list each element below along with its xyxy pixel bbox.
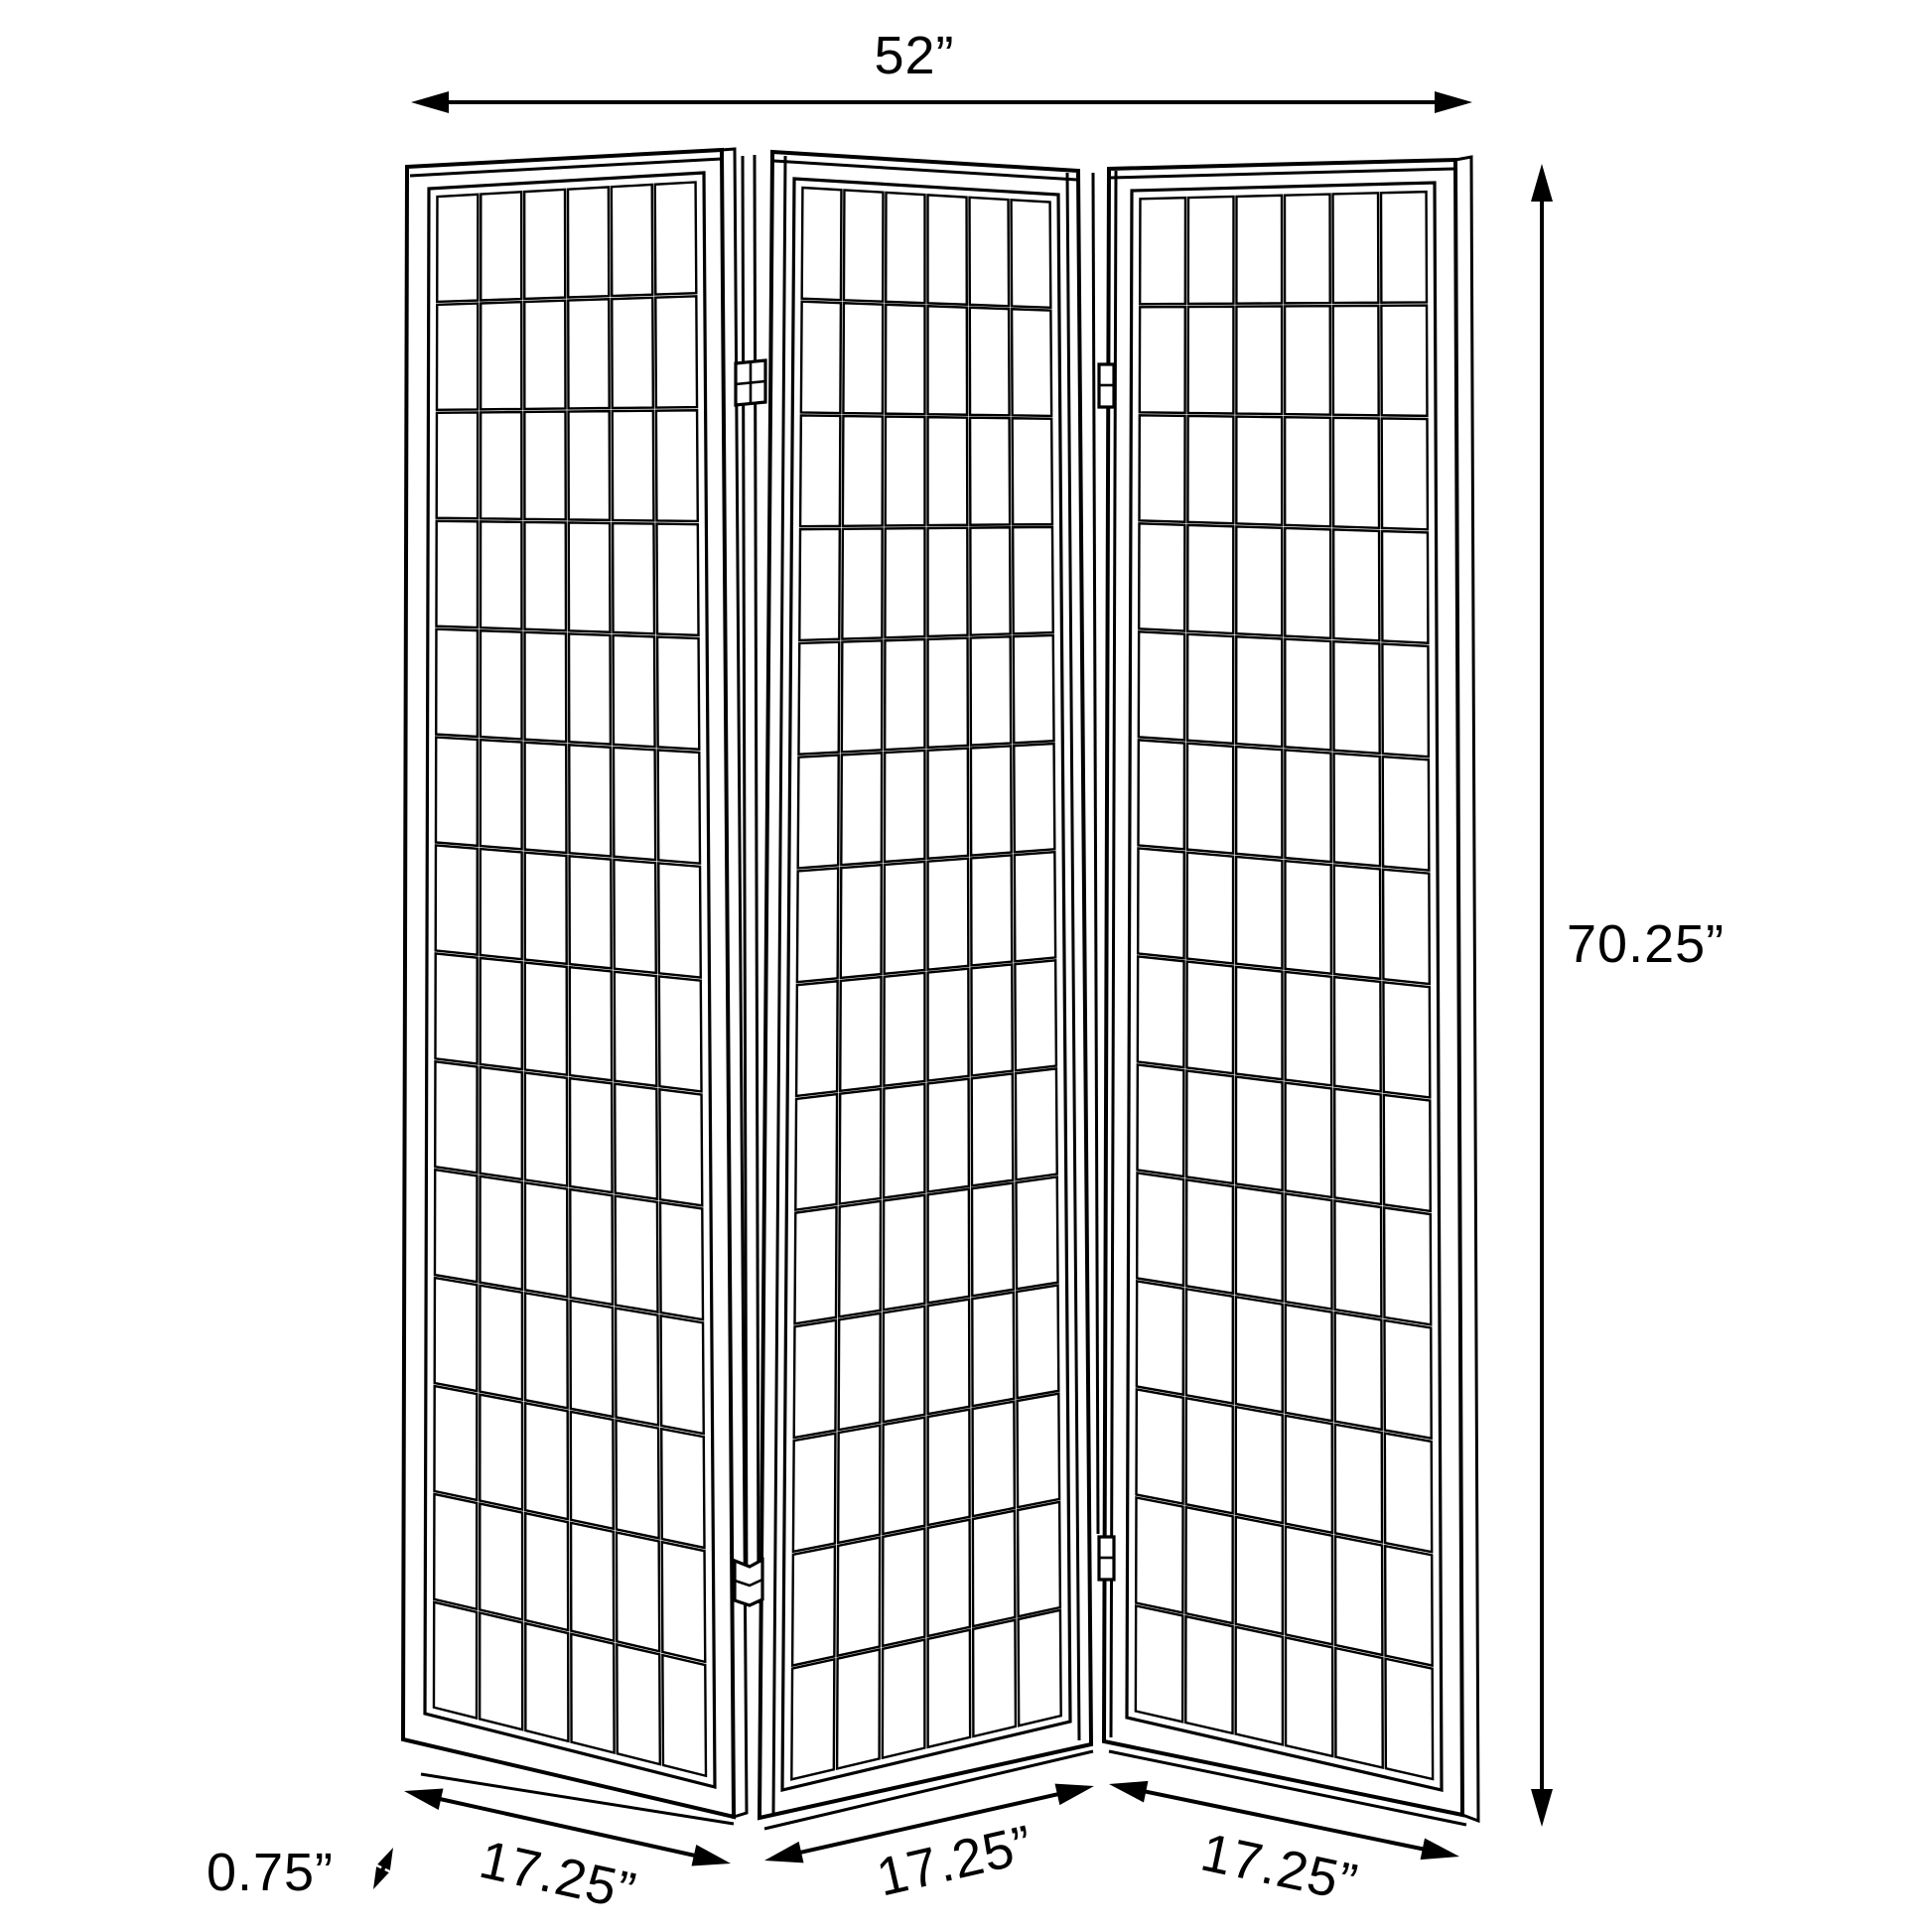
lattice-cell xyxy=(1285,417,1330,526)
lattice-cell xyxy=(1286,1527,1332,1645)
lattice-cell xyxy=(436,845,478,954)
lattice-cell xyxy=(884,973,924,1086)
lattice-cell xyxy=(437,304,478,410)
lattice-cell xyxy=(1286,1637,1332,1755)
lattice-cell xyxy=(1236,1407,1283,1523)
lattice-cell xyxy=(480,1176,521,1290)
lattice-cell xyxy=(1139,415,1184,521)
lattice-cell xyxy=(1286,1083,1332,1197)
lattice-cell xyxy=(843,416,883,526)
lattice-cell xyxy=(973,1620,1016,1736)
lattice-cell xyxy=(1383,982,1430,1097)
overall-height-arrow-arrowhead xyxy=(1531,164,1553,202)
lattice-cell xyxy=(1187,634,1233,744)
lattice-cell xyxy=(1137,1389,1183,1503)
lattice-cell xyxy=(524,412,565,520)
lattice-cell xyxy=(1236,747,1282,858)
lattice-cell xyxy=(971,964,1012,1075)
lattice-cell xyxy=(838,1426,880,1543)
lattice-cell xyxy=(1137,1173,1183,1285)
panel3-width-arrow-arrowhead xyxy=(1421,1839,1459,1861)
lattice-cell xyxy=(883,1418,924,1534)
lattice-cell xyxy=(1285,195,1330,304)
lattice-cell xyxy=(928,1300,970,1415)
lattice-cell xyxy=(435,1061,477,1173)
lattice-cell xyxy=(1185,1507,1232,1623)
hinge-left-upper xyxy=(736,360,765,405)
lattice-cell xyxy=(1385,1434,1432,1553)
lattice-cell xyxy=(612,185,652,296)
lattice-cell xyxy=(1236,967,1283,1079)
lattice-cell xyxy=(525,1513,568,1630)
lattice-cell xyxy=(524,301,565,409)
lattice-cell xyxy=(1015,960,1056,1070)
lattice-cell xyxy=(1236,417,1282,525)
lattice-cell xyxy=(659,976,702,1091)
lattice-cell xyxy=(798,642,839,755)
right-panel-lattice xyxy=(1136,192,1433,1779)
lattice-cell xyxy=(928,1189,970,1304)
lattice-cell xyxy=(841,753,882,865)
lattice-cell xyxy=(481,740,522,849)
lattice-cell xyxy=(525,743,567,853)
frame-thickness-arrow-arrowhead xyxy=(373,1866,389,1889)
lattice-cell xyxy=(795,1094,837,1210)
lattice-cell xyxy=(435,1170,478,1282)
lattice-cell xyxy=(1384,1095,1431,1211)
frame-thickness-arrow xyxy=(373,1848,393,1889)
lattice-cell xyxy=(480,1504,522,1620)
lattice-cell xyxy=(1285,306,1330,415)
panel3-width-label: 17.25” xyxy=(1196,1823,1363,1914)
lattice-cell xyxy=(1187,744,1233,854)
lattice-cell xyxy=(885,862,925,974)
lattice-cell xyxy=(1334,754,1380,867)
lattice-cell xyxy=(1136,1497,1182,1612)
lattice-cell xyxy=(481,958,522,1069)
hinge-right-upper xyxy=(1099,364,1114,407)
panel2-width-arrow-arrowhead xyxy=(1055,1784,1094,1805)
lattice-cell xyxy=(1012,200,1051,308)
lattice-cell xyxy=(1186,962,1233,1074)
lattice-cell xyxy=(928,638,968,748)
lattice-cell xyxy=(1285,528,1330,638)
lattice-cell xyxy=(1137,1281,1183,1394)
lattice-cell xyxy=(659,1089,702,1205)
lattice-cell xyxy=(1140,198,1185,304)
lattice-cell xyxy=(972,1183,1014,1297)
lattice-cell xyxy=(1384,1320,1431,1439)
lattice-cell xyxy=(1334,977,1381,1091)
lattice-cell xyxy=(1012,309,1051,416)
lattice-cell xyxy=(568,299,609,408)
lattice-cell xyxy=(525,853,567,964)
lattice-cell xyxy=(1334,865,1381,978)
lattice-cell xyxy=(570,1078,613,1192)
lattice-cell xyxy=(800,415,840,526)
lattice-cell xyxy=(525,632,567,742)
lattice-cell xyxy=(885,751,925,862)
lattice-cell xyxy=(525,1293,568,1408)
lattice-cell xyxy=(928,1410,970,1525)
lattice-cell xyxy=(1017,1286,1058,1399)
dimension-diagram: 52” 70.25” 17.25” 17.25” 17.25” 0.75” xyxy=(0,0,1932,1932)
lattice-cell xyxy=(1138,740,1183,849)
lattice-cell xyxy=(1186,1071,1233,1183)
lattice-cell xyxy=(1013,418,1052,524)
lattice-cell xyxy=(1333,306,1379,415)
lattice-cell xyxy=(1382,644,1428,758)
overall-height-arrow-arrowhead xyxy=(1531,1789,1553,1827)
lattice-cell xyxy=(614,860,655,973)
lattice-cell xyxy=(794,1320,836,1438)
lattice-cell xyxy=(1187,853,1233,964)
lattice-cell xyxy=(1334,1200,1381,1316)
lattice-cell xyxy=(928,749,969,859)
lattice-cell xyxy=(655,296,697,407)
lattice-cell xyxy=(885,528,924,637)
lattice-cell xyxy=(972,1074,1014,1186)
lattice-cell xyxy=(840,977,881,1091)
lattice-cell xyxy=(617,1644,659,1764)
lattice-cell xyxy=(657,637,699,750)
lattice-cell xyxy=(525,963,567,1075)
lattice-cell xyxy=(1335,1312,1382,1430)
lattice-cell xyxy=(973,1511,1016,1626)
lattice-cell xyxy=(656,524,698,635)
hinge-gap-line-2 xyxy=(1093,173,1098,1534)
right-panel-edge-line-0 xyxy=(1110,169,1454,178)
lattice-cell xyxy=(1186,1398,1233,1513)
lattice-cell xyxy=(570,1189,613,1305)
lattice-cell xyxy=(1015,852,1055,961)
overall-height-label: 70.25” xyxy=(1567,914,1725,974)
lattice-cell xyxy=(1016,1176,1057,1289)
lattice-cell xyxy=(1333,418,1379,528)
middle-panel xyxy=(759,152,1093,1829)
lattice-cell xyxy=(928,1079,969,1192)
lattice-cell xyxy=(615,972,657,1086)
lattice-cell xyxy=(928,859,969,970)
lattice-cell xyxy=(796,981,838,1096)
lattice-cell xyxy=(1286,972,1332,1085)
lattice-cell xyxy=(481,630,522,739)
lattice-cell xyxy=(928,417,968,525)
lattice-cell xyxy=(658,863,701,977)
lattice-cell xyxy=(884,1307,925,1422)
lattice-cell xyxy=(480,1612,522,1729)
lattice-cell xyxy=(613,411,654,521)
lattice-cell xyxy=(1236,1627,1283,1745)
lattice-cell xyxy=(1236,857,1282,969)
lattice-cell xyxy=(1185,1616,1232,1733)
overall-height-arrow xyxy=(1531,164,1553,1827)
lattice-cell xyxy=(614,635,655,747)
lattice-cell xyxy=(1382,531,1428,643)
lattice-cell xyxy=(435,953,477,1063)
lattice-cell xyxy=(571,1301,614,1417)
lattice-cell xyxy=(570,856,612,968)
lattice-cell xyxy=(1236,1297,1283,1412)
right-panel-edge-line-2 xyxy=(1109,1751,1466,1825)
lattice-cell xyxy=(569,745,611,856)
lattice-cell xyxy=(883,1529,924,1646)
lattice-cell xyxy=(1381,306,1427,416)
lattice-cell xyxy=(884,1084,924,1198)
lattice-cell xyxy=(481,521,521,628)
panel1-width-label: 17.25” xyxy=(475,1830,641,1922)
lattice-cell xyxy=(525,1403,568,1519)
lattice-cell xyxy=(1333,529,1379,640)
panel3-width-arrow-arrowhead xyxy=(1109,1781,1148,1803)
lattice-cell xyxy=(1285,639,1330,751)
lattice-cell xyxy=(616,1196,658,1312)
lattice-cell xyxy=(481,849,522,959)
lattice-cell xyxy=(839,1313,881,1430)
lattice-cell xyxy=(1139,631,1184,740)
lattice-cell xyxy=(971,855,1012,965)
panel1-width-arrow-arrowhead xyxy=(404,1788,443,1809)
lattice-cell xyxy=(436,521,478,627)
lattice-cell xyxy=(1140,307,1185,413)
lattice-cell xyxy=(436,629,478,737)
lattice-cell xyxy=(971,636,1012,745)
lattice-cell xyxy=(1236,1517,1283,1634)
lattice-cell xyxy=(928,306,968,415)
lattice-cell xyxy=(837,1649,880,1768)
lattice-cell xyxy=(437,195,478,302)
lattice-cell xyxy=(1286,1305,1332,1421)
lattice-cell xyxy=(525,1623,568,1741)
overall-width-label: 52” xyxy=(874,26,954,85)
lattice-cell xyxy=(970,198,1010,306)
lattice-cell xyxy=(1334,1089,1381,1204)
lattice-cell xyxy=(928,969,969,1081)
lattice-cell xyxy=(437,412,478,518)
lattice-cell xyxy=(928,1630,971,1747)
lattice-cell xyxy=(1335,1425,1382,1543)
lattice-cell xyxy=(568,187,609,297)
lattice-cell xyxy=(1381,192,1427,303)
lattice-cell xyxy=(1138,956,1184,1067)
lattice-cell xyxy=(797,868,838,982)
lattice-cell xyxy=(801,302,841,413)
lattice-cell xyxy=(617,1421,659,1539)
lattice-cell xyxy=(435,1278,478,1391)
lattice-cell xyxy=(793,1434,836,1552)
lattice-cell xyxy=(614,748,655,860)
lattice-cell xyxy=(436,738,478,846)
lattice-cell xyxy=(662,1542,705,1662)
lattice-cell xyxy=(971,746,1012,855)
lattice-cell xyxy=(844,190,884,301)
middle-panel-edge-line-3 xyxy=(764,1751,1093,1829)
lattice-cell xyxy=(884,1195,925,1311)
lattice-cell xyxy=(1335,1536,1382,1655)
lattice-cell xyxy=(571,1523,614,1641)
lattice-cell xyxy=(569,411,611,520)
diagram-page: 52” 70.25” 17.25” 17.25” 17.25” 0.75” xyxy=(0,0,1932,1932)
lattice-cell xyxy=(661,1429,704,1548)
lattice-cell xyxy=(525,1182,567,1297)
lattice-cell xyxy=(842,528,882,638)
lattice-cell xyxy=(1286,1193,1332,1309)
lattice-cell xyxy=(1188,307,1234,414)
lattice-cell xyxy=(1019,1610,1061,1725)
lattice-cell xyxy=(1186,1179,1233,1293)
lattice-cell xyxy=(1236,1186,1283,1301)
lattice-cell xyxy=(1333,641,1379,754)
lattice-cell xyxy=(1383,870,1430,984)
lattice-cell xyxy=(660,1202,703,1319)
lattice-cell xyxy=(655,182,697,294)
lattice-cell xyxy=(569,522,611,631)
lattice-cell xyxy=(1187,525,1233,633)
lattice-cell xyxy=(798,756,839,869)
left-panel xyxy=(403,149,747,1824)
lattice-cell xyxy=(1236,306,1282,414)
overall-width-arrow xyxy=(411,91,1472,113)
frame-thickness-label: 0.75” xyxy=(207,1843,334,1902)
lattice-cell xyxy=(842,640,883,752)
lattice-cell xyxy=(480,1286,522,1400)
lattice-cell xyxy=(434,1386,477,1500)
lattice-cell xyxy=(1136,1606,1182,1723)
lattice-cell xyxy=(792,1547,835,1666)
lattice-cell xyxy=(661,1315,704,1434)
lattice-cell xyxy=(616,1309,658,1426)
lattice-cell xyxy=(434,1494,477,1609)
lattice-cell xyxy=(1236,1077,1283,1190)
lattice-cell xyxy=(927,195,966,304)
lattice-cell xyxy=(1236,636,1282,747)
middle-panel-edge-line-0 xyxy=(773,161,1077,180)
lattice-cell xyxy=(838,1538,881,1656)
lattice-cell xyxy=(972,1293,1014,1407)
lattice-cell xyxy=(1385,1546,1432,1665)
lattice-cell xyxy=(571,1412,614,1529)
lattice-cell xyxy=(481,302,521,409)
panel1-width-arrow-arrowhead xyxy=(692,1845,731,1865)
lattice-cell xyxy=(612,298,653,408)
left-panel-lattice xyxy=(434,182,706,1775)
overall-width-arrow-arrowhead xyxy=(1435,91,1472,113)
lattice-cell xyxy=(1236,526,1282,635)
lattice-cell xyxy=(615,1084,657,1199)
lattice-cell xyxy=(1018,1502,1060,1616)
dimension-lines xyxy=(373,91,1553,1889)
right-panel xyxy=(1104,157,1478,1825)
lattice-cell xyxy=(1383,757,1430,870)
lattice-cell xyxy=(1139,523,1184,630)
lattice-cell xyxy=(1285,750,1330,862)
lattice-cell xyxy=(1013,527,1053,633)
lattice-cell xyxy=(970,527,1010,634)
lattice-cell xyxy=(791,1659,834,1779)
lattice-cell xyxy=(569,633,611,744)
lattice-cell xyxy=(1236,196,1282,304)
lattice-cell xyxy=(1188,197,1234,304)
lattice-cell xyxy=(799,529,840,640)
middle-panel-lattice xyxy=(791,188,1060,1779)
lattice-cell xyxy=(570,967,612,1080)
overall-width-arrow-arrowhead xyxy=(411,91,449,113)
lattice-cell xyxy=(617,1533,659,1652)
lattice-cell xyxy=(1186,1289,1233,1403)
lattice-cell xyxy=(656,410,698,521)
lattice-cell xyxy=(970,308,1010,416)
frame-thickness-arrow-arrowhead xyxy=(377,1848,393,1870)
lattice-cell xyxy=(794,1207,836,1323)
hinge-right-lower xyxy=(1099,1537,1114,1580)
lattice-cell xyxy=(524,522,566,630)
lattice-cell xyxy=(434,1602,477,1719)
lattice-cell xyxy=(1333,193,1379,303)
lattice-cell xyxy=(928,528,968,636)
panel2-width-label: 17.25” xyxy=(872,1814,1039,1907)
lattice-cell xyxy=(481,192,521,300)
lattice-cell xyxy=(480,1395,522,1510)
lattice-cell xyxy=(885,639,924,750)
lattice-cell xyxy=(886,305,925,414)
lattice-cell xyxy=(524,190,565,299)
lattice-cell xyxy=(839,1201,881,1316)
lattice-cell xyxy=(1138,1064,1184,1176)
lattice-cell xyxy=(840,1089,882,1204)
lattice-cell xyxy=(1286,1416,1332,1533)
lattice-cell xyxy=(1014,744,1054,852)
lattice-cell xyxy=(1187,416,1233,523)
lattice-cell xyxy=(1386,1659,1434,1779)
lattice-cell xyxy=(1382,418,1428,529)
panel2-width-arrow-arrowhead xyxy=(764,1842,803,1863)
lattice-cell xyxy=(883,1640,925,1758)
lattice-cell xyxy=(662,1655,706,1776)
lattice-cell xyxy=(841,865,882,978)
right-panel-edge-sliver xyxy=(1455,157,1478,1821)
lattice-cell xyxy=(1014,635,1054,743)
lattice-cell xyxy=(886,417,925,526)
lattice-cell xyxy=(613,523,654,633)
lattice-cell xyxy=(525,1073,567,1186)
lattice-cell xyxy=(1138,848,1184,958)
lattice-cell xyxy=(928,1520,970,1636)
hinge-left-lower xyxy=(735,1560,762,1605)
lattice-cell xyxy=(481,412,521,519)
lattice-cell xyxy=(481,1067,522,1179)
lattice-cell xyxy=(802,188,842,300)
lattice-cell xyxy=(1285,861,1330,974)
lattice-cell xyxy=(1335,1648,1382,1767)
lattice-cell xyxy=(843,303,883,413)
screen-drawing xyxy=(403,149,1478,1829)
lattice-cell xyxy=(1384,1207,1431,1324)
lattice-cell xyxy=(973,1402,1015,1516)
lattice-cell xyxy=(1016,1068,1057,1179)
lattice-cell xyxy=(1018,1394,1060,1508)
lattice-cell xyxy=(886,193,924,303)
lattice-cell xyxy=(658,751,700,864)
lattice-cell xyxy=(571,1634,614,1753)
lattice-cell xyxy=(970,418,1010,525)
